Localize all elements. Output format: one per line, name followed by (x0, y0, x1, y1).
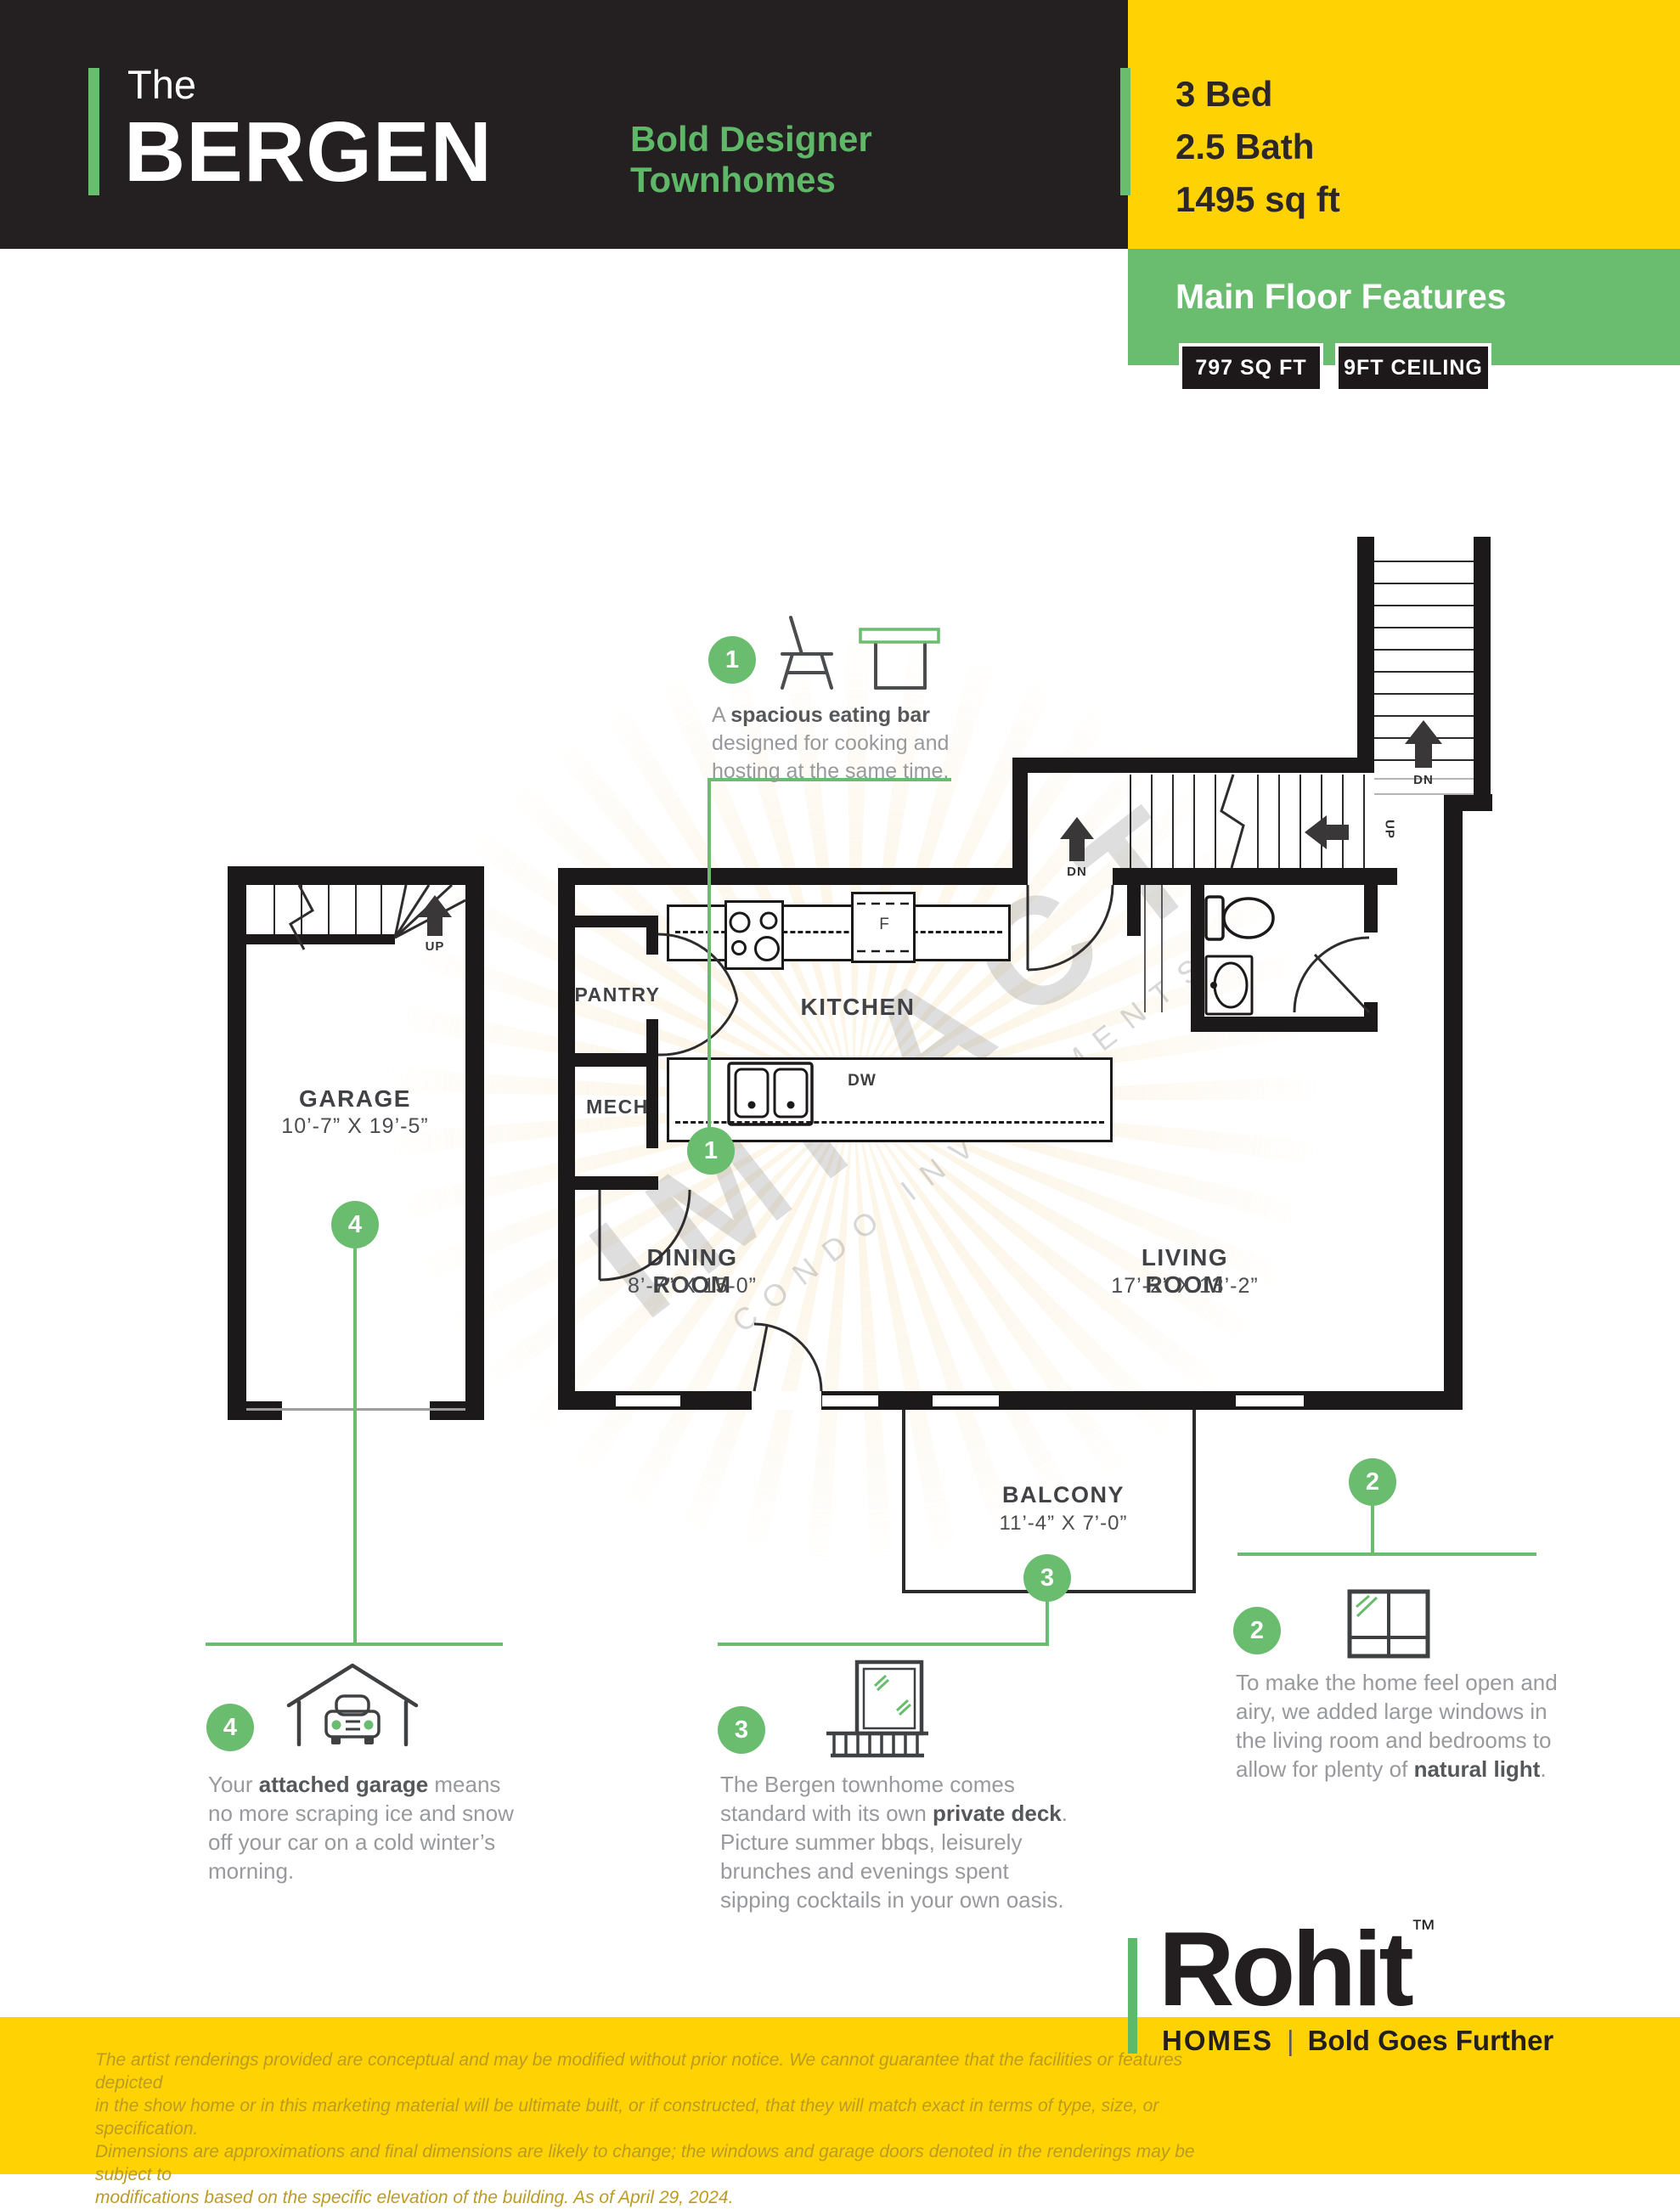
living-dim: 17’-2” X 13’-2” (1083, 1274, 1287, 1299)
disclaimer-line: in the show home or in this marketing ma… (95, 2094, 1250, 2140)
balcony-dim: 11’-4” X 7’-0” (961, 1512, 1165, 1536)
powder-wall-right-bottom (1364, 1002, 1378, 1032)
ext-stair-dn-label: DN (1407, 773, 1440, 787)
int-stair-tread (1278, 775, 1280, 868)
plan-marker-4: 4 (331, 1201, 379, 1248)
ext-stair-tread (1374, 715, 1474, 717)
garage-stair-tread (328, 885, 330, 939)
sqft-badge: 797 SQ FT (1179, 343, 1323, 392)
mech-wall-bottom (575, 1176, 658, 1190)
ext-stair-tread (1374, 561, 1474, 562)
disclaimer-line: Dimensions are approximations and final … (95, 2140, 1250, 2186)
unit-wall-bottom (558, 1391, 1463, 1410)
entry-dn-label: DN (1060, 865, 1094, 879)
int-stair-tread (1130, 775, 1131, 868)
mech-label: MECH (562, 1096, 673, 1119)
logo-name: Rohit (1159, 1911, 1411, 2028)
logo-slogan: Bold Goes Further (1308, 2025, 1554, 2057)
int-stair-tread (1342, 775, 1344, 868)
kitchen-island-dashline (675, 1121, 1104, 1124)
unit-wall-right (1444, 794, 1463, 1410)
int-stair-tread (1172, 775, 1174, 868)
hall-wall-top (1012, 758, 1374, 773)
callout4-leader-h (206, 1643, 503, 1646)
plan-marker-3: 3 (1023, 1554, 1071, 1602)
callout1-text: A spacious eating bar designed for cooki… (712, 702, 975, 786)
int-stair-tread (1321, 775, 1322, 868)
ext-stair-tread (1374, 627, 1474, 628)
int-stair-tread (1363, 775, 1365, 868)
callout2-text: To make the home feel open and airy, we … (1236, 1668, 1610, 1784)
int-stair-up-label: UP (1383, 813, 1397, 847)
garage-stair-tread (355, 885, 357, 939)
ext-stair-tread-light (1374, 793, 1474, 795)
window (616, 1393, 680, 1409)
ext-stair-wall-left (1357, 537, 1374, 769)
powder-wall-left (1191, 885, 1204, 1017)
ext-stair-tread (1374, 605, 1474, 606)
callout1-number: 1 (708, 636, 756, 684)
ext-stair-tread (1374, 737, 1474, 739)
stat-beds: 3 Bed (1175, 68, 1340, 121)
stat-sqft: 1495 sq ft (1175, 173, 1340, 226)
plan-marker-2: 2 (1349, 1458, 1396, 1506)
section-title: Main Floor Features (1175, 277, 1507, 317)
garage-wall-right (465, 866, 484, 1420)
int-stair-tread (1215, 775, 1216, 868)
callout2-leader-h (1237, 1552, 1536, 1556)
balcony-door-opening (752, 1391, 821, 1410)
powder-wall-right-top (1364, 885, 1378, 933)
callout4-leader-v (353, 1248, 357, 1644)
callout2-leader-v (1371, 1506, 1374, 1554)
stats-green-accent-bar (1120, 68, 1130, 195)
window (1236, 1393, 1304, 1409)
logo-tm: ™ (1411, 1915, 1436, 1943)
header-green-accent-bar (88, 68, 99, 195)
garage-post-left (228, 1401, 282, 1420)
callout3-leader-v (1046, 1602, 1049, 1644)
fridge-label: F (871, 916, 897, 934)
disclaimer: The artist renderings provided are conce… (95, 2048, 1250, 2209)
plan-marker-1: 1 (687, 1127, 735, 1175)
kitchen-island (667, 1057, 1113, 1142)
kitchen-label: KITCHEN (773, 994, 943, 1021)
logo-homes: HOMES (1162, 2025, 1273, 2057)
callout3-number: 3 (718, 1706, 765, 1754)
ext-stair-tread (1374, 693, 1474, 695)
balcony-wall-left (902, 1410, 905, 1593)
pantry-wall-right-bottom (646, 1019, 658, 1053)
powder-wall-bottom (1191, 1017, 1378, 1032)
dishwasher-label: DW (841, 1072, 883, 1090)
tagline-line2: Townhomes (630, 160, 872, 200)
unit-wall-top (558, 868, 1012, 885)
garage-dim: 10’-7” X 19’-5” (253, 1114, 457, 1139)
garage-stair-tread (273, 885, 275, 939)
deck-icon (826, 1662, 928, 1755)
callout4-text: Your attached garage means no more scrap… (208, 1770, 573, 1885)
ext-stair-tread (1374, 649, 1474, 651)
window (933, 1393, 999, 1409)
window (822, 1393, 878, 1409)
garage-icon (289, 1665, 416, 1744)
stove (724, 900, 784, 970)
garage-up-label: UP (418, 939, 452, 954)
disclaimer-line: The artist renderings provided are conce… (95, 2048, 1250, 2094)
plan-name-title: BERGEN (124, 104, 493, 201)
hall-closet-line (1161, 885, 1163, 1012)
callout3-text: The Bergen townhome comes standard with … (720, 1770, 1119, 1914)
pantry-wall-right-top (646, 916, 658, 955)
pantry-label: PANTRY (562, 983, 673, 1006)
ext-stair-tread (1374, 671, 1474, 673)
callout4-number: 4 (206, 1704, 254, 1751)
garage-wall-top (228, 866, 484, 885)
logo-divider: | (1287, 2025, 1294, 2057)
callout1-leader-v (708, 780, 711, 1131)
unit-wall-left (558, 868, 575, 1410)
entry-wall-left (1012, 758, 1028, 885)
logo-tagline-row: HOMES | Bold Goes Further (1162, 2025, 1553, 2057)
garage-car-icon (326, 1696, 379, 1744)
tagline: Bold Designer Townhomes (630, 119, 872, 200)
callout2-number: 2 (1233, 1607, 1281, 1654)
garage-label: GARAGE (270, 1085, 440, 1113)
pantry-mech-wall (575, 1053, 658, 1067)
dining-dim: 8’-7” X 15-0” (590, 1274, 794, 1299)
plan-name-prefix: The (127, 61, 196, 108)
int-stair-tread (1193, 775, 1195, 868)
ext-stair-tread (1374, 759, 1474, 761)
window-icon (1350, 1592, 1428, 1656)
garage-stair-tread (301, 885, 302, 939)
ext-stair-tread (1374, 583, 1474, 584)
ext-stair-wall-right (1474, 537, 1491, 800)
garage-post-right (430, 1401, 484, 1420)
stats-block: 3 Bed 2.5 Bath 1495 sq ft (1175, 68, 1340, 226)
tagline-line1: Bold Designer (630, 119, 872, 160)
stat-baths: 2.5 Bath (1175, 121, 1340, 173)
garage-stair-tread (381, 885, 382, 939)
int-stair-tread (1257, 775, 1259, 868)
int-stair-tread (1299, 775, 1301, 868)
ceiling-badge: 9FT CEILING (1335, 343, 1491, 392)
disclaimer-line: modifications based on the specific elev… (95, 2186, 1250, 2209)
ext-stair-wall-joint (1444, 794, 1492, 811)
logo-wordmark: Rohit™ (1159, 1909, 1436, 2030)
balcony-wall-right (1192, 1410, 1196, 1593)
callout3-leader-h (718, 1643, 1049, 1646)
stair-wall-bottom (1113, 868, 1397, 885)
garage-wall-left (228, 866, 246, 1420)
garage-stair-edge (246, 934, 395, 944)
int-stair-tread (1151, 775, 1153, 868)
hall-wall-stub (1127, 885, 1141, 936)
logo-green-bar (1128, 1938, 1137, 2054)
hall-closet-line (1144, 885, 1146, 1012)
balcony-label: BALCONY (978, 1482, 1148, 1508)
